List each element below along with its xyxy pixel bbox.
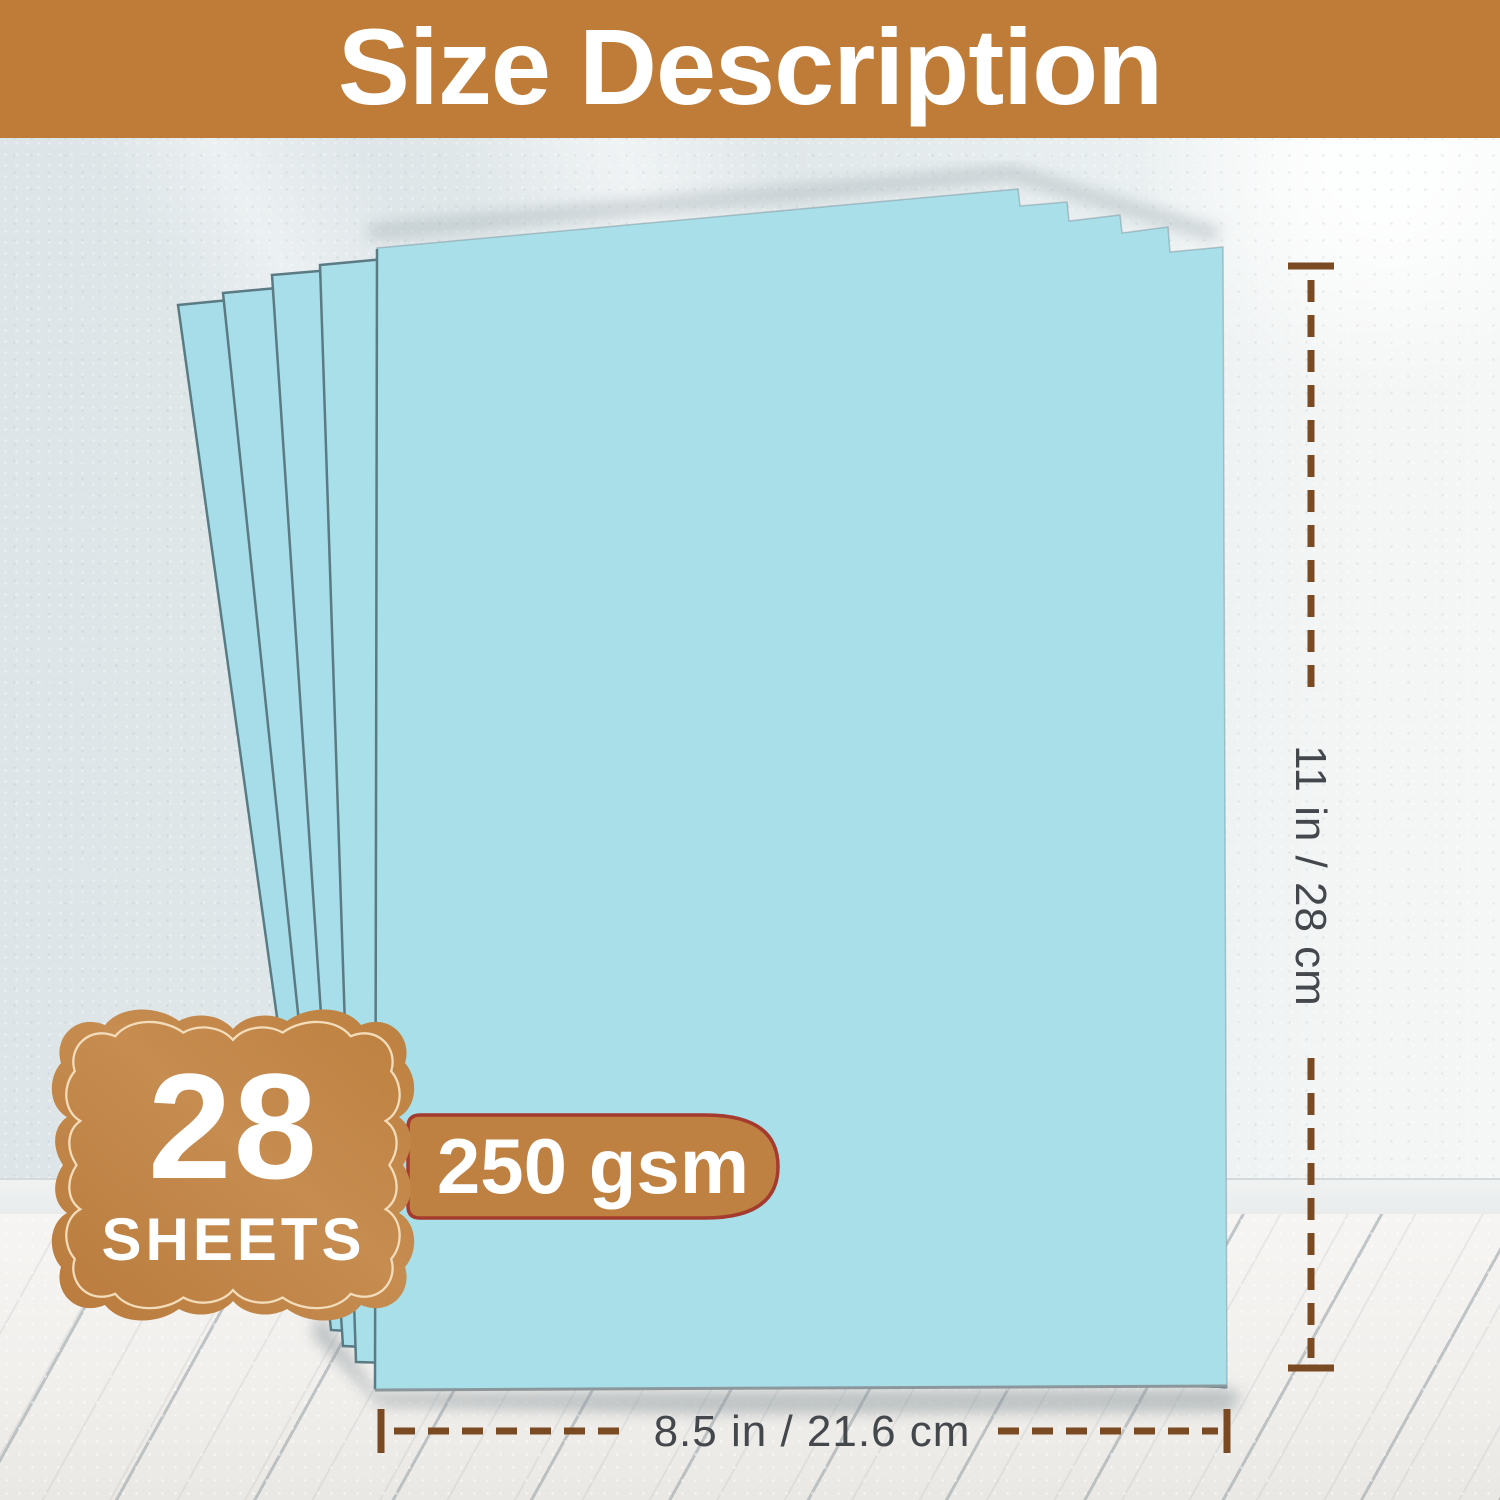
sheet-count-badge-shape xyxy=(52,1009,414,1320)
weight-value: 250 gsm xyxy=(437,1121,749,1212)
page-title: Size Description xyxy=(338,13,1162,121)
size-description-graphic: Size Description 11 in / 28 cm 8.5 in / … xyxy=(0,0,1500,1500)
weight-badge: 250 gsm xyxy=(408,1115,778,1218)
badge-outer xyxy=(52,1009,414,1320)
width-dimension-label: 8.5 in / 21.6 cm xyxy=(654,1407,971,1457)
scene-graphic xyxy=(0,0,1500,1500)
title-banner: Size Description xyxy=(0,0,1500,138)
height-dimension-label: 11 in / 28 cm xyxy=(1285,745,1335,1007)
